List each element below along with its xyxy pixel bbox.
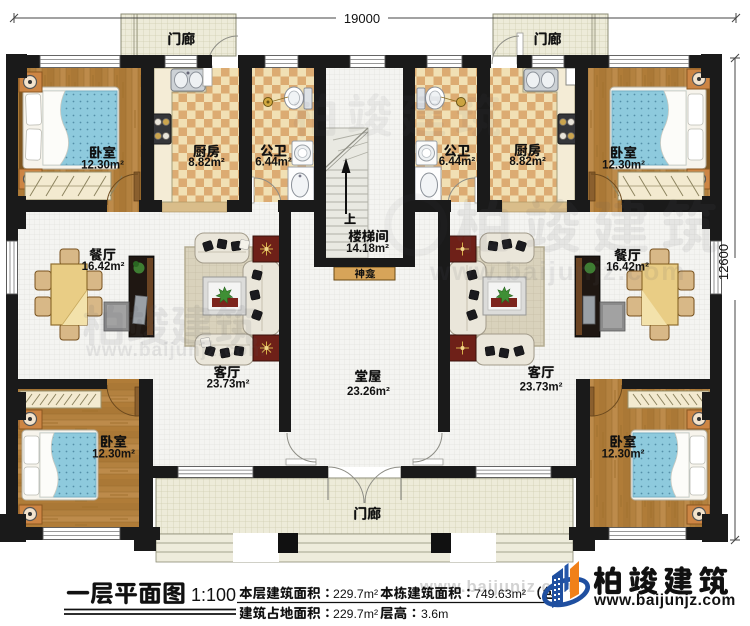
svg-text:14.18m²: 14.18m² xyxy=(346,243,389,255)
svg-text:www.baijunjz.com: www.baijunjz.com xyxy=(85,340,266,361)
svg-text:1:100: 1:100 xyxy=(191,585,236,605)
svg-text:3.6m: 3.6m xyxy=(421,607,448,621)
svg-text:23.73m²: 23.73m² xyxy=(520,382,563,394)
svg-text:16.42m²: 16.42m² xyxy=(82,261,125,273)
svg-text:8.82m²: 8.82m² xyxy=(188,157,225,169)
svg-text:www.baijunjz.com: www.baijunjz.com xyxy=(593,592,736,609)
svg-text:12.30m²: 12.30m² xyxy=(602,160,645,172)
svg-text:8.82m²: 8.82m² xyxy=(509,156,546,168)
svg-text:12.30m²: 12.30m² xyxy=(602,449,645,461)
svg-text:12.30m²: 12.30m² xyxy=(81,160,124,172)
svg-text:19000: 19000 xyxy=(344,11,380,26)
svg-text:23.73m²: 23.73m² xyxy=(207,379,250,391)
svg-text:229.7m²: 229.7m² xyxy=(333,587,378,601)
svg-text:229.7m²: 229.7m² xyxy=(333,607,378,621)
svg-text:749.63m²: 749.63m² xyxy=(474,587,526,601)
svg-text:6.44m²: 6.44m² xyxy=(439,156,476,168)
svg-text:12600: 12600 xyxy=(716,244,731,280)
svg-text:16.42m²: 16.42m² xyxy=(606,262,649,274)
svg-text:12.30m²: 12.30m² xyxy=(92,449,135,461)
svg-text:6.44m²: 6.44m² xyxy=(255,157,292,169)
svg-text:23.26m²: 23.26m² xyxy=(347,386,390,398)
